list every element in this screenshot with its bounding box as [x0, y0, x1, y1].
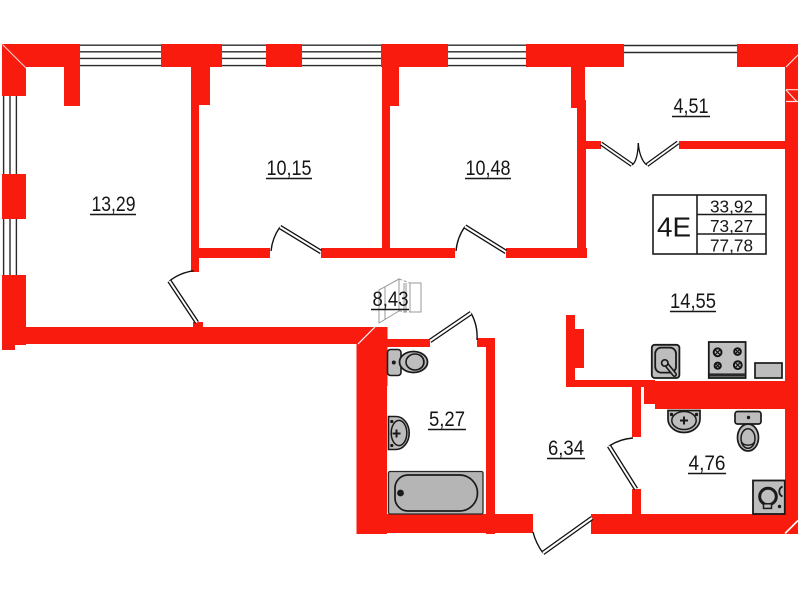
svg-text:13,29: 13,29: [92, 193, 136, 216]
svg-text:33,92: 33,92: [710, 197, 753, 217]
svg-text:4Е: 4Е: [657, 212, 691, 243]
svg-text:5,27: 5,27: [429, 408, 465, 431]
svg-text:4,76: 4,76: [689, 452, 726, 475]
svg-text:10,15: 10,15: [267, 157, 312, 180]
svg-text:10,48: 10,48: [466, 157, 511, 180]
svg-text:73,27: 73,27: [710, 216, 753, 236]
svg-text:77,78: 77,78: [710, 236, 753, 256]
svg-text:8,43: 8,43: [373, 288, 409, 311]
svg-text:4,51: 4,51: [674, 95, 709, 118]
svg-text:6,34: 6,34: [548, 437, 584, 460]
svg-text:14,55: 14,55: [670, 290, 716, 313]
